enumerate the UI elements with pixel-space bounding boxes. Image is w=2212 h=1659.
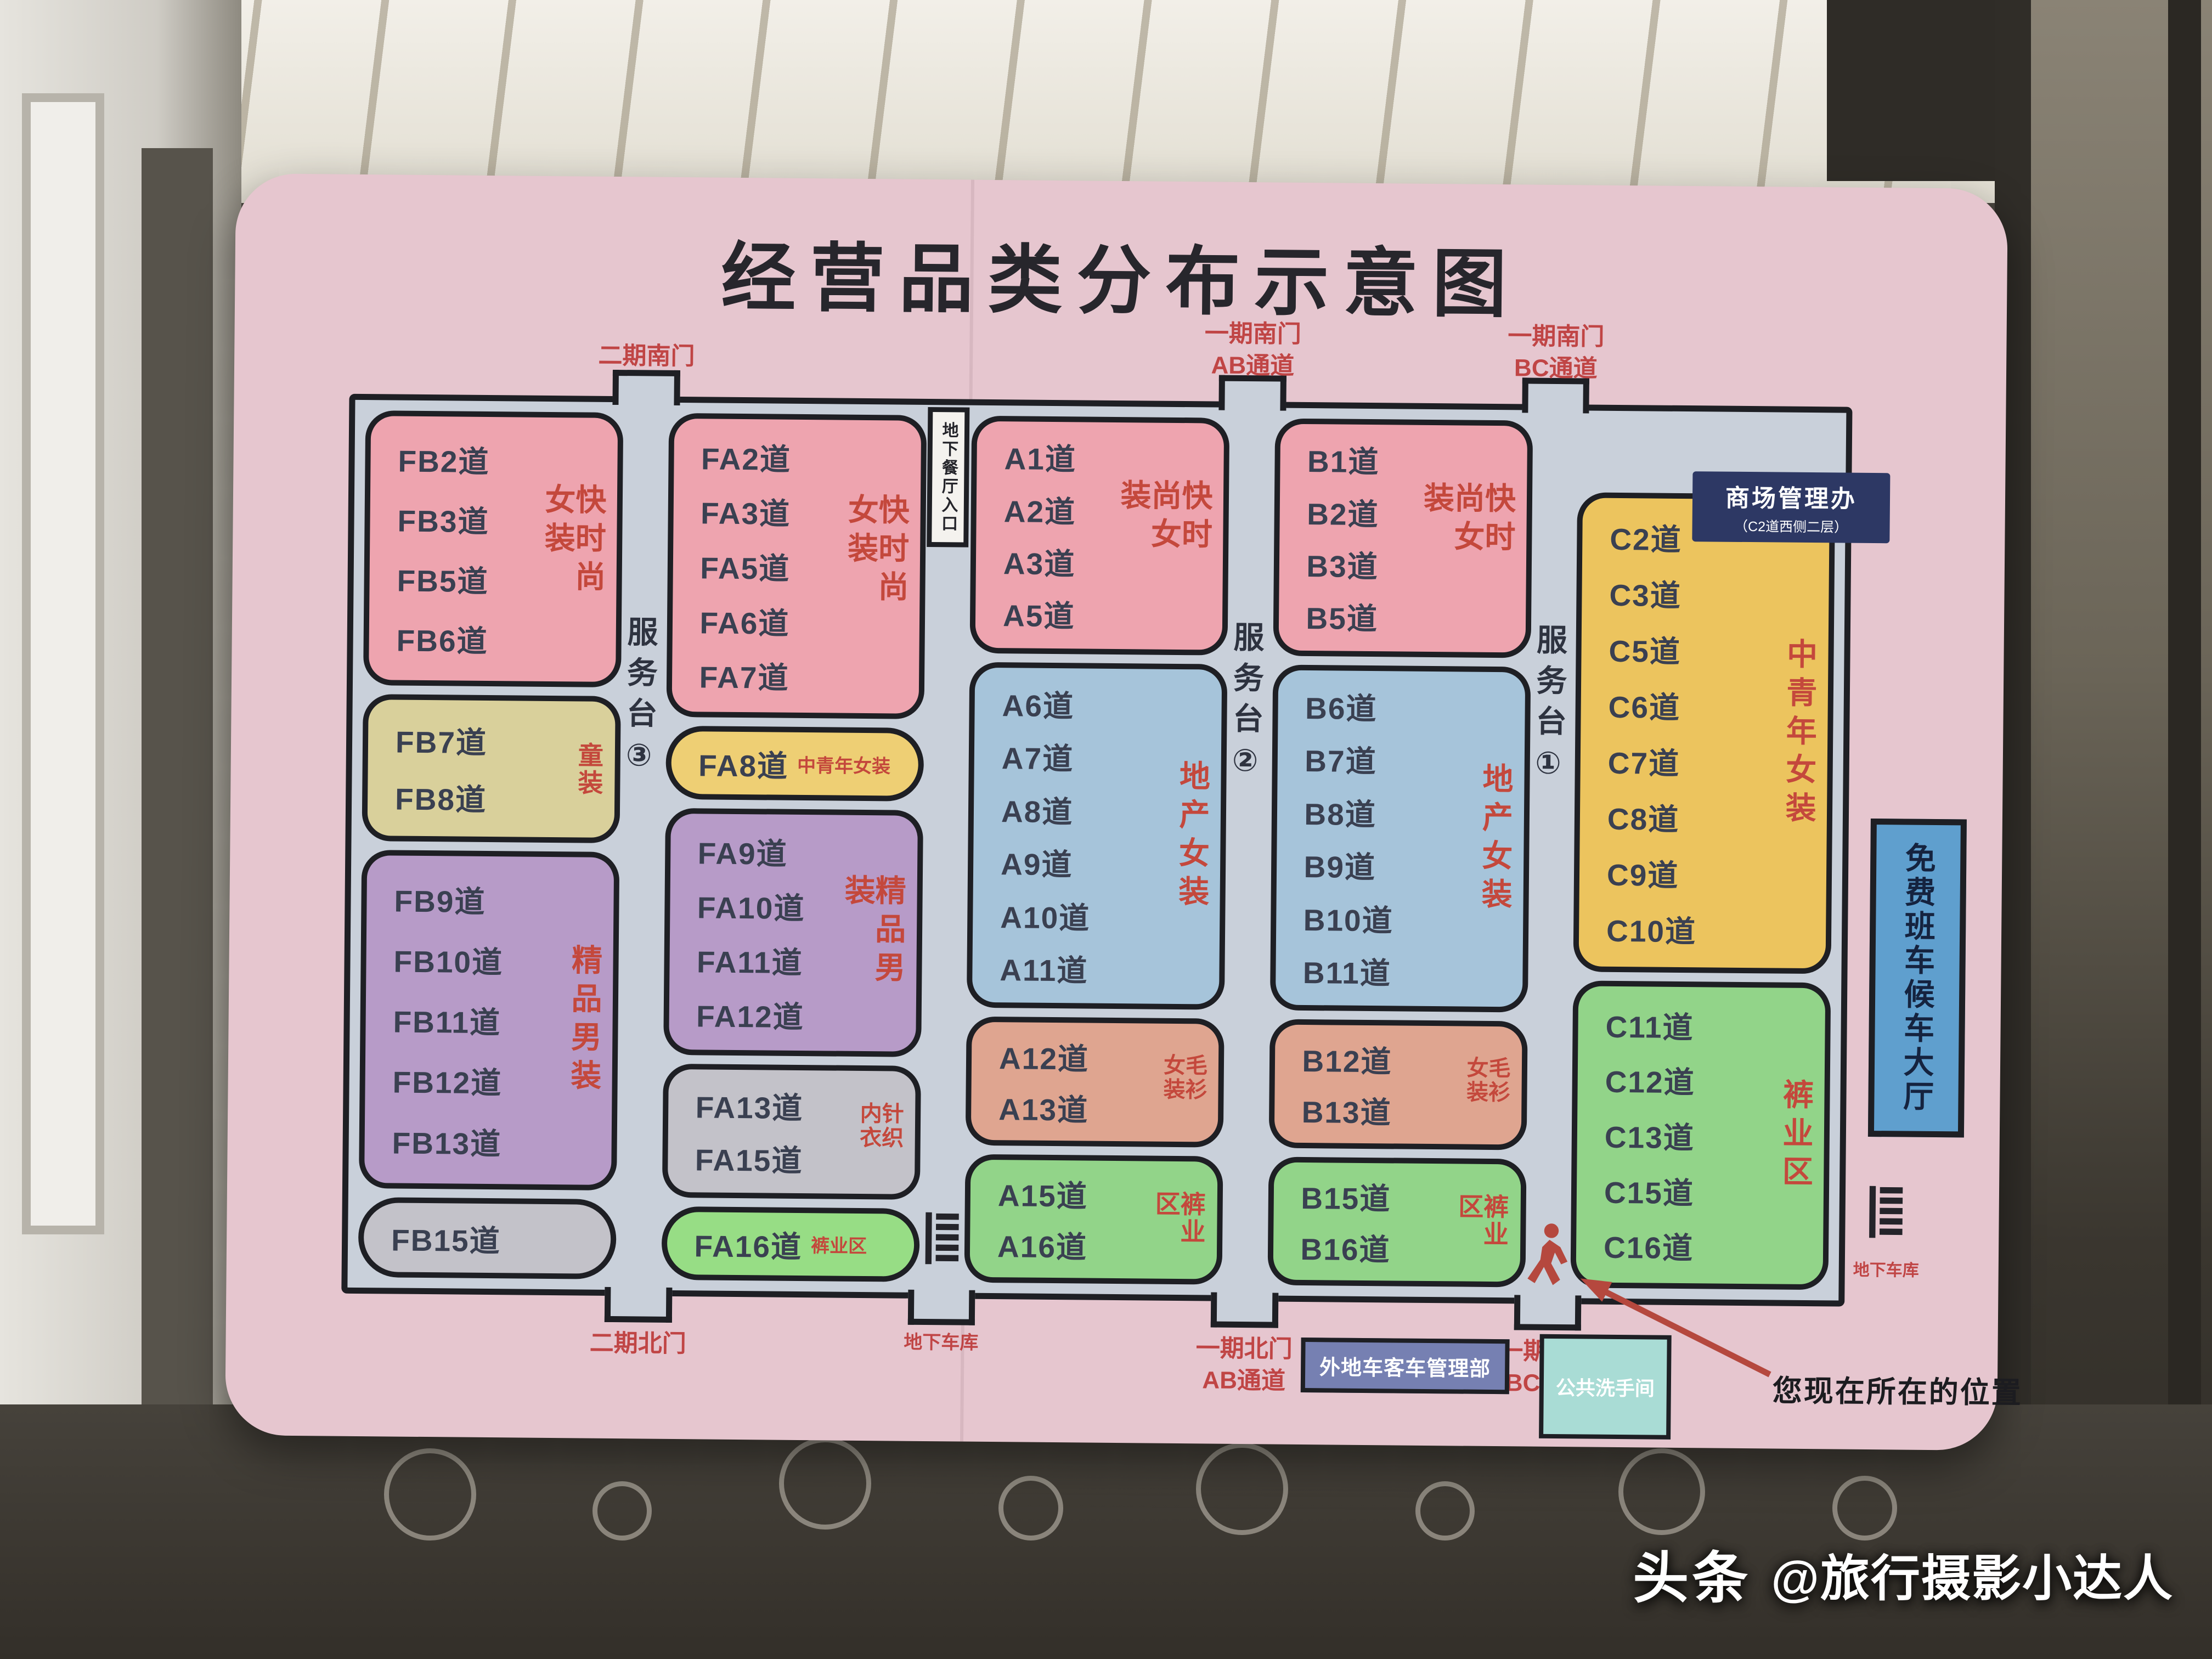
lane-row: FA7道 [672,652,919,698]
lane-row: C3道 [1582,570,1829,616]
lane-label: B6道 [1305,684,1378,728]
door-label: 一期北门AB通道 [1195,1333,1293,1397]
block-A-裤业区: A15道A16道裤业区 [964,1154,1223,1284]
lane-row: A11道 [972,945,1220,991]
lane-label: C7道 [1608,738,1680,783]
lane-label: FB7道 [396,717,488,761]
lane-label: FA9道 [698,828,788,873]
door-label-line: 一期南门 [1508,320,1605,353]
lane-row: FA8道中青年女装 [671,741,918,787]
lane-label: B9道 [1304,842,1376,887]
you-are-here-label: 您现在所在的位置 [1773,1366,2023,1412]
block-FB-精品男装: FB9道FB10道FB11道FB12道FB13道精品男装 [359,850,619,1190]
lane-row: B11道 [1276,948,1523,994]
lane-row: B5道 [1278,594,1526,640]
ornament-swirl [1618,1448,1705,1535]
ornament-swirl [1415,1481,1475,1541]
column-FA: FA2道FA3道FA5道FA6道FA7道快时尚女装FA8道中青年女装FA9道FA… [661,413,927,1282]
lane-label: C8道 [1607,794,1680,839]
public-restroom-box: 公共洗手间 [1539,1334,1672,1440]
lane-row: FA12道 [669,991,916,1037]
category-label: 快时尚女装 [541,483,604,616]
column-C: C2道C3道C5道C6道C7道C8道C9道C10道中青年女装C11道C12道C1… [1570,492,1835,1290]
block-FB: FB15道 [358,1197,617,1279]
lane-label: C11道 [1605,1002,1694,1047]
column-B: B1道B2道B3道B5道快时尚女装B6道B7道B8道B9道B10道B11道地产女… [1267,418,1533,1287]
block-B-快时尚女装: B1道B2道B3道B5道快时尚女装 [1273,418,1533,658]
management-office-sublabel: （C2道西侧二层） [1696,515,1885,537]
lane-label: FA6道 [699,598,790,642]
lane-label: FA16道 [694,1221,802,1266]
category-label: 地产女装 [1176,760,1207,913]
lane-row: FA16道裤业区 [667,1221,914,1267]
lane-row: FB15道 [364,1215,611,1261]
lane-label: C13道 [1605,1113,1695,1157]
door-label-line: 一期北门 [1195,1333,1293,1365]
service-desk-label: 服务台③ [624,616,656,783]
lane-label: C10道 [1606,906,1697,951]
door-opening [1211,1293,1278,1328]
lane-label: A13道 [998,1085,1089,1129]
lane-row: A5道 [975,591,1223,637]
lane-label: A8道 [1001,787,1074,831]
walking-person-icon [1520,1221,1575,1297]
category-label: 精品男装 [568,944,600,1098]
lane-label: A1道 [1004,435,1076,479]
column-A: A1道A2道A3道A5道快时尚女装A6道A7道A8道A9道A10道A11道地产女… [964,416,1230,1285]
lane-label: C3道 [1609,571,1681,615]
category-label: 裤业区 [1457,1193,1508,1252]
escalator-icon [1867,1183,1905,1244]
service-desk-label: 服务台② [1230,621,1262,788]
lane-row: FB6道 [369,616,616,662]
category-label: 童装 [576,742,602,797]
lane-label: B7道 [1305,736,1377,781]
escalator-icon [923,1210,961,1270]
ornament-swirl [592,1481,652,1541]
lane-row: A6道 [974,681,1222,727]
category-label: 中青年女装 [797,750,890,777]
door-opening [907,1290,975,1325]
category-label: 快时尚女装 [1117,479,1210,593]
shuttle-bus-hall-box: 免费班车候车大厅 [1868,819,1967,1138]
lane-label: A12道 [999,1034,1090,1078]
lane-row: FA9道 [670,828,918,874]
lane-label: FA3道 [701,489,791,533]
poster: 经营品类分布示意图 FB2道FB3道FB5道FB6道快时尚女装FB7道FB8道童… [225,173,2008,1451]
block-FA-针织内衣: FA13道FA15道针织内衣 [662,1064,921,1199]
lane-row: FA2道 [674,434,921,480]
block-B-裤业区: B15道B16道裤业区 [1267,1156,1526,1287]
door-label-line: 二期南门 [598,340,695,373]
lane-label: C6道 [1608,682,1680,727]
management-office-label: 商场管理办 [1697,478,1886,515]
lane-label: B10道 [1303,895,1393,940]
category-label: 裤业区 [1153,1190,1204,1250]
door-opening [612,370,680,405]
lane-label: B2道 [1307,489,1379,534]
lane-label: A6道 [1002,681,1074,725]
block-FB-童装: FB7道FB8道童装 [362,694,620,843]
category-label: 针织内衣 [857,1102,902,1163]
lane-label: FB3道 [397,496,489,540]
category-label: 快时尚女装 [844,493,907,640]
lane-label: FB15道 [391,1215,501,1260]
door-label-line: AB通道 [1204,349,1301,382]
ornament-swirl [1832,1476,1897,1541]
lane-label: FA11道 [697,937,803,982]
door-label: 一期南门AB通道 [1204,318,1301,382]
block-FB-快时尚女装: FB2道FB3道FB5道FB6道快时尚女装 [363,410,623,687]
lane-label: B12道 [1302,1036,1392,1081]
lane-row: A1道 [977,434,1224,480]
lane-row: B1道 [1280,437,1527,483]
watermark-brand: 头条 [1633,1533,1751,1614]
door-label: 二期南门 [598,340,695,373]
lane-label: C16道 [1604,1223,1694,1267]
restaurant-entrance-box: 地下餐厅入口 [927,407,969,548]
lane-label: B3道 [1306,541,1379,586]
block-A-地产女装: A6道A7道A8道A9道A10道A11道地产女装 [967,662,1227,1010]
block-A-快时尚女装: A1道A2道A3道A5道快时尚女装 [970,416,1230,656]
door-label-line: BC通道 [1508,352,1605,385]
lane-label: A7道 [1002,734,1074,778]
ornament-swirl [384,1448,476,1541]
category-label: 裤业区 [1780,1079,1812,1194]
lane-label: C15道 [1604,1168,1695,1212]
garage-label: 地下车库 [1831,1256,1941,1281]
lane-label: FB9道 [394,877,486,921]
door-opening [605,1287,672,1323]
lane-label: A10道 [1000,893,1091,937]
block-FA-裤业区: FA16道裤业区 [661,1206,919,1282]
door-label: 一期南门BC通道 [1508,320,1605,385]
lane-row: C9道 [1579,850,1827,896]
lane-label: FA12道 [696,991,804,1036]
lane-label: B11道 [1303,948,1392,992]
lane-label: FB8道 [395,774,487,819]
block-FA-快时尚女装: FA2道FA3道FA5道FA6道FA7道快时尚女装 [666,413,927,719]
door-label-line: 地下车库 [904,1330,978,1356]
lane-row: FB2道 [370,436,618,482]
door-label-line: 二期北门 [590,1328,687,1361]
category-label: 毛衫女装 [1161,1053,1205,1113]
lane-label: B16道 [1300,1224,1391,1269]
lane-label: A2道 [1003,487,1076,531]
lane-label: FA8道 [698,741,789,785]
lane-label: FB10道 [393,937,503,982]
lane-label: B1道 [1307,437,1380,481]
lane-row: FB13道 [364,1118,612,1164]
door-opening [1514,1295,1581,1330]
block-B-地产女装: B6道B7道B8道B9道B10道B11道地产女装 [1269,664,1530,1013]
ornament-swirl [998,1476,1063,1541]
lane-label: FA7道 [699,652,789,697]
ornament-swirl [779,1437,871,1530]
lane-label: A15道 [998,1171,1088,1216]
lane-label: FB12道 [392,1058,502,1103]
door-label-line: 一期南门 [1205,318,1302,351]
block-B-毛衫女装: B12道B13道毛衫女装 [1268,1019,1527,1150]
lane-label: B15道 [1301,1173,1391,1218]
watermark: 头条 @旅行摄影小达人 [1633,1533,2174,1614]
block-C-中青年女装: C2道C3道C5道C6道C7道C8道C9道C10道中青年女装 [1573,492,1835,974]
category-label: 精品男装 [842,874,904,992]
lane-label: A11道 [1000,945,1088,990]
block-FA-中青年女装: FA8道中青年女装 [665,726,924,802]
lane-label: A16道 [997,1222,1088,1266]
block-A-毛衫女装: A12道A13道毛衫女装 [966,1017,1224,1147]
block-FA-精品男装: FA9道FA10道FA11道FA12道精品男装 [663,808,923,1057]
lane-label: C2道 [1610,515,1682,559]
service-desk-label: 服务台① [1533,624,1565,791]
column-FB: FB2道FB3道FB5道FB6道快时尚女装FB7道FB8道童装FB9道FB10道… [358,410,624,1279]
door-label: 地下车库 [904,1330,978,1356]
lane-label: A3道 [1003,539,1076,583]
bus-management-box: 外地车客车管理部 [1301,1338,1510,1394]
lane-label: FB2道 [398,436,490,481]
category-label: 地产女装 [1479,763,1511,916]
lane-row: C16道 [1576,1223,1824,1269]
lane-label: FA13道 [695,1083,803,1128]
lane-row: C10道 [1579,906,1826,952]
lane-label: FB13道 [392,1118,501,1163]
lane-label: FB5道 [397,556,489,600]
lane-label: FA5道 [700,543,791,588]
management-office-box: 商场管理办 （C2道西侧二层） [1692,471,1890,543]
lane-label: A5道 [1003,591,1075,635]
door-label-line: AB通道 [1195,1364,1293,1397]
lane-label: B13道 [1301,1087,1392,1132]
lane-label: FB11道 [393,997,501,1042]
category-label: 裤业区 [811,1231,867,1258]
lane-label: FA2道 [701,434,792,478]
lane-label: FA10道 [697,883,805,928]
category-label: 毛衫女装 [1464,1056,1509,1115]
floor-map: FB2道FB3道FB5道FB6道快时尚女装FB7道FB8道童装FB9道FB10道… [225,173,2008,1451]
category-label: 中青年女装 [1783,638,1815,830]
block-C-裤业区: C11道C12道C13道C15道C16道裤业区 [1570,980,1831,1290]
lane-label: C5道 [1609,627,1681,671]
ornament-swirl [1196,1443,1288,1535]
lane-label: B5道 [1306,594,1378,638]
left-door-frame [22,93,104,1234]
lane-label: B8道 [1304,789,1376,834]
lane-label: C12道 [1605,1057,1695,1102]
lane-row: C11道 [1578,1002,1825,1048]
lane-label: C9道 [1607,850,1679,895]
lane-row: FB9道 [366,876,614,922]
door-label: 二期北门 [590,1328,687,1361]
watermark-handle: @旅行摄影小达人 [1771,1538,2174,1610]
lane-row: B6道 [1278,684,1525,730]
lane-label: FB6道 [396,616,488,660]
lane-label: A9道 [1001,839,1073,884]
category-label: 快时尚女装 [1420,482,1514,596]
lane-label: FA15道 [695,1135,803,1180]
